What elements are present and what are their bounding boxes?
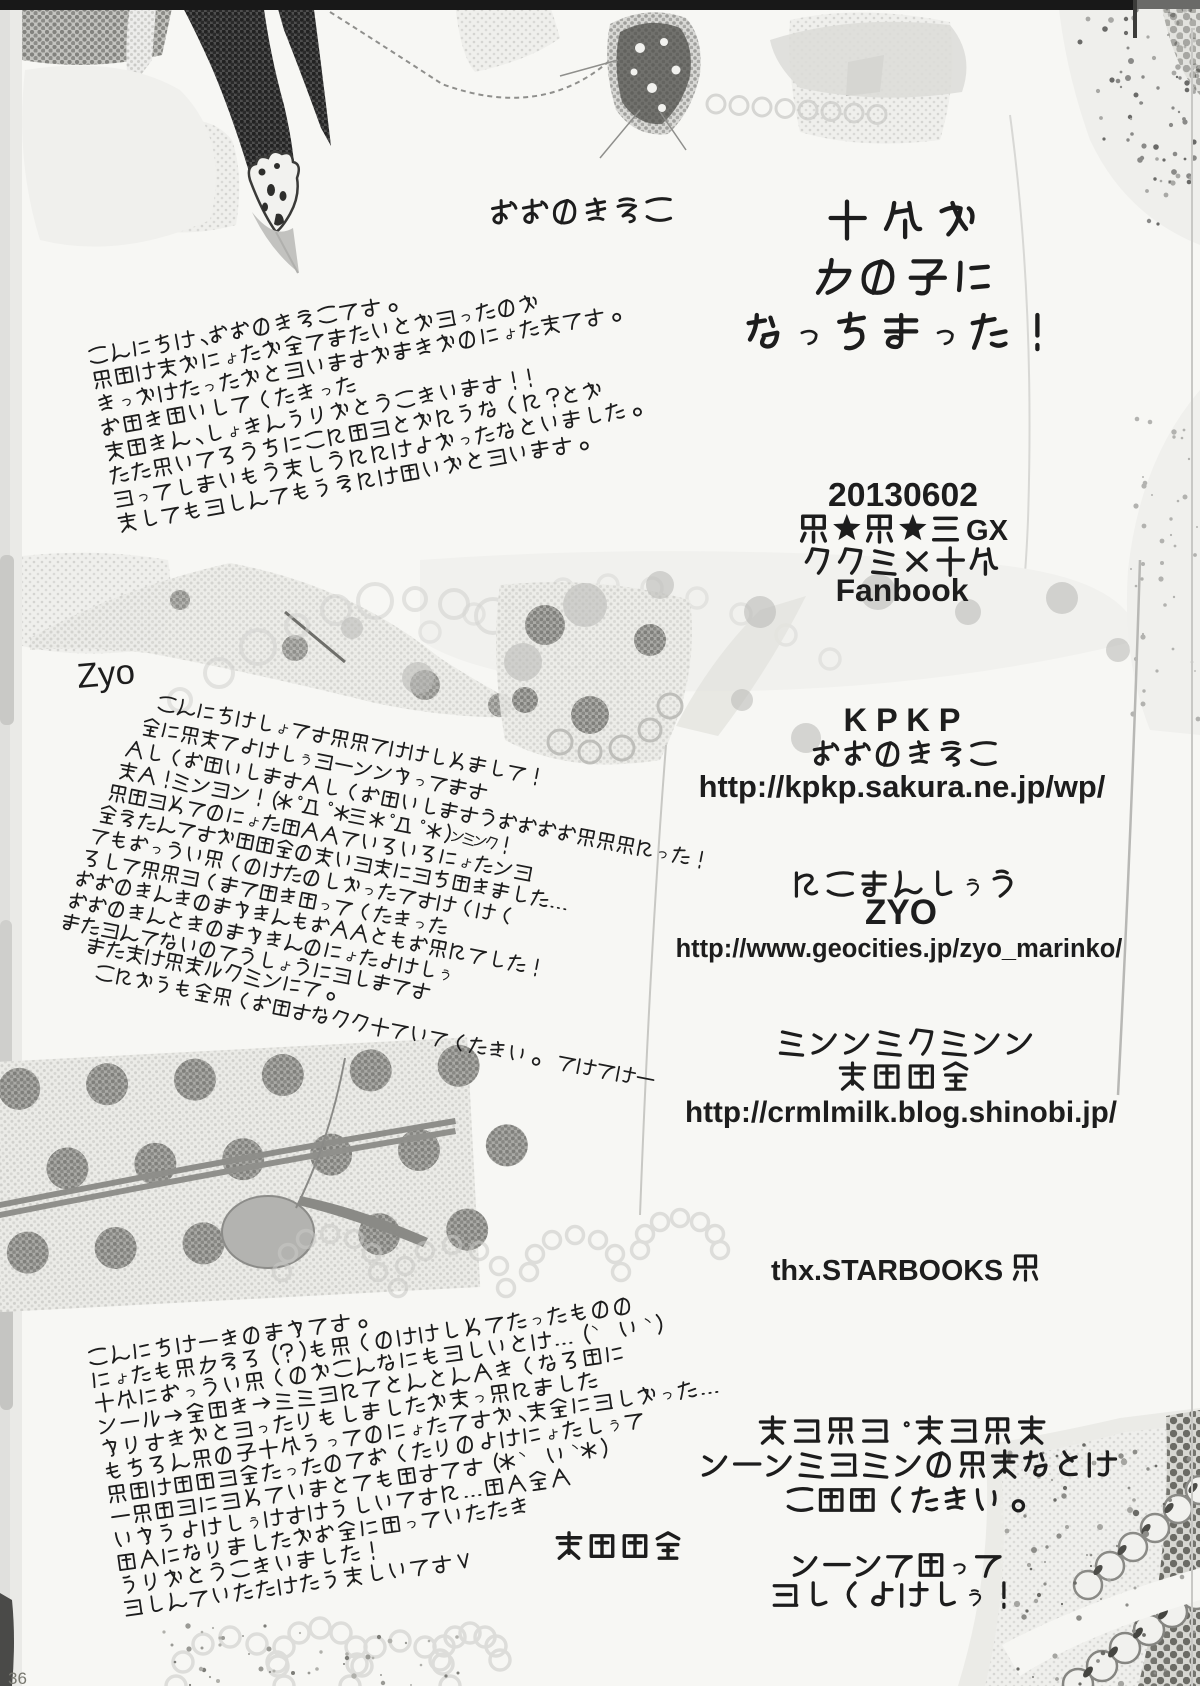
svg-text:K P K P: K P K P [843,701,960,738]
svg-text:http://www.geocities.jp/zyo_ma: http://www.geocities.jp/zyo_marinko/ [676,935,1123,963]
svg-text:http://kpkp.sakura.ne.jp/wp/: http://kpkp.sakura.ne.jp/wp/ [699,769,1106,804]
svg-text:GX: GX [966,515,1009,547]
svg-text:Fanbook: Fanbook [836,572,969,608]
svg-text:Zyo: Zyo [75,652,136,696]
svg-text:20130602: 20130602 [828,476,978,514]
svg-text:36: 36 [8,1669,27,1686]
svg-text:thx.STARBOOKS: thx.STARBOOKS [771,1255,1003,1287]
svg-text:http://crmlmilk.blog.shinobi.j: http://crmlmilk.blog.shinobi.jp/ [685,1096,1117,1129]
svg-text:ZYO: ZYO [865,893,937,932]
